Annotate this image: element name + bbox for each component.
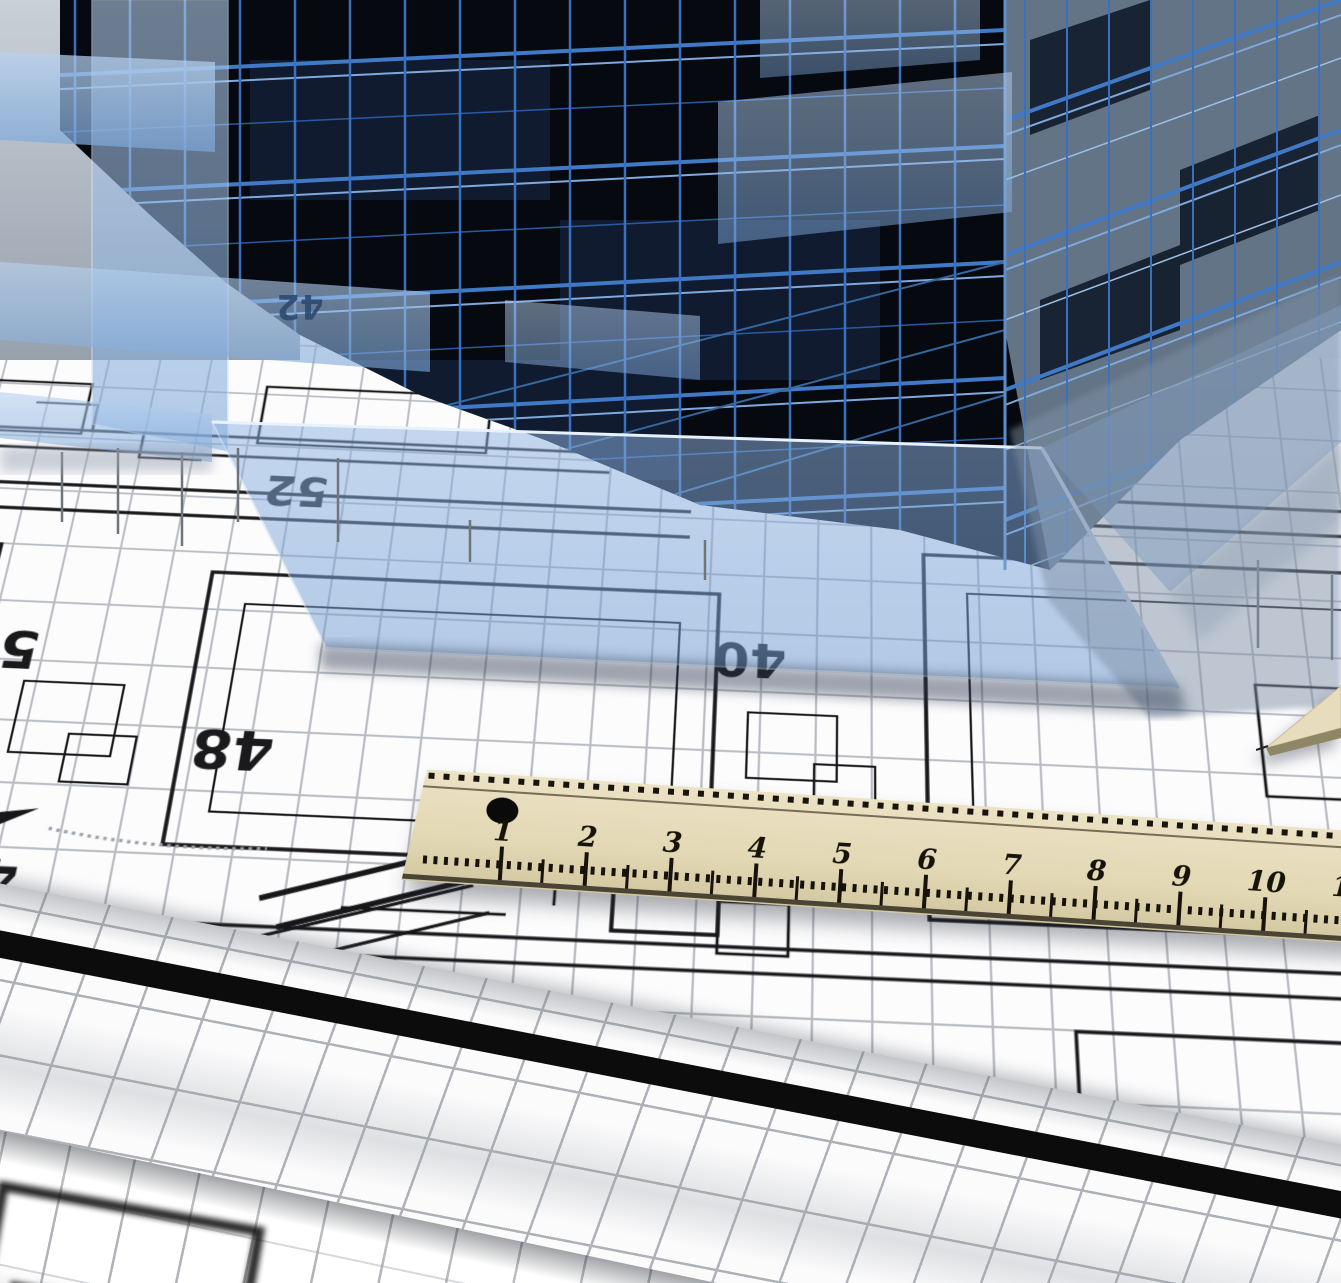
glass-panel [760, 0, 980, 78]
ruler-scale-number: 9 [1171, 859, 1193, 893]
dimension-label: 48 [186, 716, 279, 782]
ruler-scale-number: 2 [576, 820, 599, 854]
ruler-scale-number: 1 [492, 814, 514, 848]
background-highlight [1120, 0, 1341, 170]
ruler-scale-number: 5 [831, 837, 853, 871]
dimension-label: 52 [0, 616, 46, 679]
glass-panel [0, 52, 215, 152]
ruler-scale-number: 11 [1331, 870, 1341, 906]
ruler-scale-number: 10 [1246, 864, 1288, 900]
glass-panel [718, 72, 1012, 244]
dimension-label: 40 [625, 395, 687, 439]
dimension-label: 40 [712, 630, 787, 688]
ruler-scale-number: 8 [1085, 853, 1108, 887]
ruler-scale-number: 6 [916, 842, 938, 876]
ruler-scale-number: 4 [747, 831, 769, 865]
dimension-label: 52 [260, 466, 332, 514]
scene: 52 100 52 48 40 40 52 5 48 [0, 0, 1341, 1283]
right-face-dark-openings [1030, 0, 1320, 380]
ruler-scale-number: 7 [1001, 848, 1023, 882]
drafting-tool-corner [1256, 684, 1341, 762]
ruler-scale-number: 3 [662, 825, 684, 859]
